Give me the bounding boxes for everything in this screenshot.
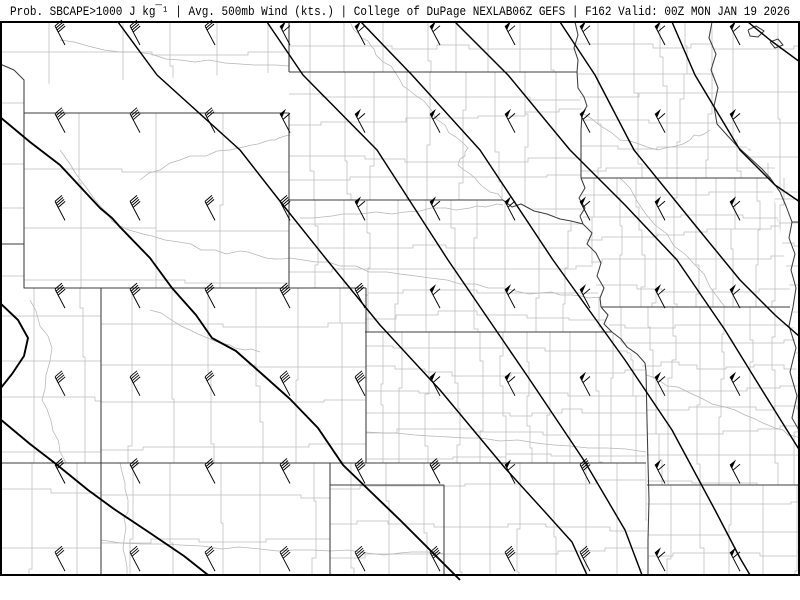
svg-text:Prob. SBCAPE>1000 J kg¯¹ | Avg: Prob. SBCAPE>1000 J kg¯¹ | Avg. 500mb Wi… bbox=[10, 4, 790, 19]
